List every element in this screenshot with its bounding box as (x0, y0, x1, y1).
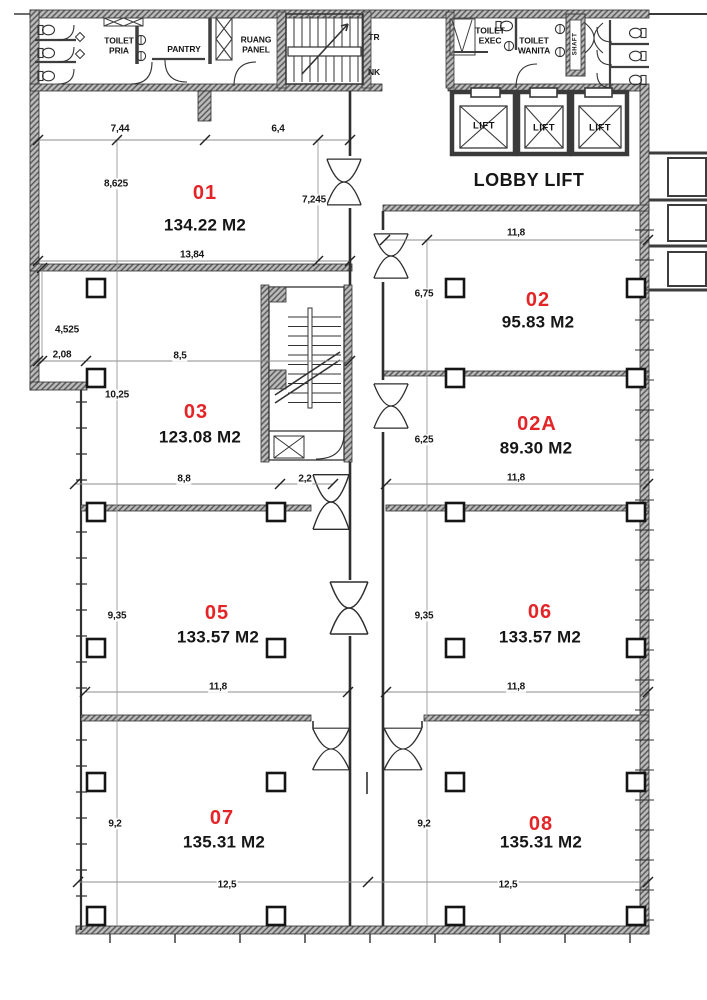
staircase-top (286, 14, 363, 84)
label-toilet-pria: TOILET PRIA (104, 36, 133, 55)
label-ruang-panel: RUANG PANEL (241, 35, 272, 54)
room-03-area: 123.08 M2 (159, 427, 241, 446)
room-02a-area: 89.30 M2 (500, 438, 572, 457)
urinal-icon (76, 33, 85, 59)
door-arc (58, 25, 74, 84)
double-swing-door-icon (330, 582, 368, 634)
stair-shaft-box (274, 436, 304, 458)
dim-room06-height: 9,35 (414, 610, 435, 621)
label-lift-1: LIFT (473, 122, 495, 133)
room-02-area: 95.83 M2 (502, 312, 574, 331)
sink-icon (504, 41, 513, 50)
double-swing-door-icon (374, 384, 408, 428)
double-swing-door-icon (313, 728, 350, 770)
dim-room01-height-right: 7,245 (301, 194, 327, 205)
label-shaft: SHAFT (573, 33, 580, 56)
dim-room02a-height: 6,25 (414, 434, 435, 445)
room-01-number: 01 (193, 182, 217, 204)
dim-room06-width: 11,8 (506, 681, 526, 692)
room-08-area: 135.31 M2 (500, 832, 582, 851)
dim-room02-width: 11,8 (506, 227, 526, 238)
label-lift-3: LIFT (589, 124, 611, 135)
column-icon (87, 369, 105, 387)
double-swing-door-icon (327, 159, 361, 205)
column-icon (627, 279, 645, 297)
dim-room02-height: 6,75 (414, 288, 435, 299)
column-icon (446, 279, 464, 297)
dim-room03-height: 10,25 (104, 389, 130, 400)
room-07-number: 07 (210, 807, 234, 829)
column-icon (627, 503, 645, 521)
dim-room03-width: 8,5 (172, 350, 187, 361)
column-icon (87, 907, 105, 925)
column-icon (627, 773, 645, 791)
door-symbols (313, 159, 422, 794)
panel-shaft (216, 18, 232, 60)
dim-room03-notch-width: 2,08 (52, 349, 73, 360)
column-icon (446, 773, 464, 791)
room-07-area: 135.31 M2 (183, 832, 265, 851)
column-icon (267, 639, 285, 657)
column-icon (446, 369, 464, 387)
column-icon (87, 639, 105, 657)
sink-icon (555, 24, 564, 33)
column-icon (267, 773, 285, 791)
double-swing-door-icon (384, 728, 422, 770)
dim-room02a-width: 11,8 (506, 472, 526, 483)
room-05-number: 05 (205, 602, 229, 624)
toilet-icon (38, 25, 55, 35)
label-toilet-wanita: TOILET WANITA (518, 36, 550, 55)
dim-room05-width: 11,8 (208, 681, 228, 692)
dim-room07-height: 9,2 (107, 818, 122, 829)
toilet-icon (630, 75, 647, 85)
room-02-number: 02 (526, 289, 550, 311)
dim-room01-width-left: 7,44 (110, 123, 131, 134)
dim-corridor-width: 2,2 (297, 473, 312, 484)
column-icon (267, 503, 285, 521)
door-arc (131, 62, 152, 84)
room-05-area: 133.57 M2 (177, 627, 259, 646)
double-swing-door-icon (374, 234, 408, 278)
column-icon (87, 773, 105, 791)
toilet-icon (630, 51, 647, 61)
floorplan-drawing (0, 0, 707, 1000)
label-stair-tr: TR (368, 33, 379, 43)
column-icon (446, 907, 464, 925)
column-icon (87, 279, 105, 297)
column-icon (446, 503, 464, 521)
door-arc (234, 62, 256, 86)
room-06-area: 133.57 M2 (499, 627, 581, 646)
louver-shaft (104, 18, 143, 26)
right-exterior (649, 153, 707, 290)
column-icon (446, 639, 464, 657)
label-toilet-exec: TOILET EXEC (475, 26, 504, 45)
label-lobby-lift: LOBBY LIFT (474, 170, 585, 190)
room-06-number: 06 (528, 601, 552, 623)
dim-room03-notch-height: 4,525 (54, 324, 80, 335)
dim-room05-height: 9,35 (107, 610, 128, 621)
label-pantry: PANTRY (167, 45, 200, 55)
staircase-central (261, 285, 352, 462)
toilet-icon (630, 28, 647, 38)
dim-room01-width-right: 6,4 (270, 123, 285, 134)
room-02a-number: 02A (517, 413, 557, 435)
dim-room07-width: 12,5 (217, 879, 238, 890)
dim-room01-width-total: 13,84 (179, 249, 205, 260)
room-01-area: 134.22 M2 (164, 215, 246, 234)
dim-room08-height: 9,2 (416, 818, 431, 829)
dimension-lines (38, 140, 648, 926)
column-icon (267, 907, 285, 925)
room-03-number: 03 (184, 401, 208, 423)
floor-plan: 7,44 6,4 8,625 7,245 13,84 11,8 6,75 4,5… (0, 0, 707, 1000)
dim-room03-bottom-width: 8,8 (176, 473, 191, 484)
column-icon (87, 503, 105, 521)
label-lift-2: LIFT (533, 124, 555, 135)
column-icon (627, 639, 645, 657)
dim-room08-width: 12,5 (498, 879, 519, 890)
double-swing-door-icon (313, 475, 349, 530)
label-stair-nk: NK (368, 68, 380, 78)
toilet-icon (38, 48, 55, 58)
toilet-icon (38, 71, 55, 81)
door-arc (165, 60, 187, 82)
sink-icon (555, 47, 564, 56)
column-icon (627, 369, 645, 387)
dim-room01-height-left: 8,625 (103, 178, 129, 189)
column-icon (627, 907, 645, 925)
